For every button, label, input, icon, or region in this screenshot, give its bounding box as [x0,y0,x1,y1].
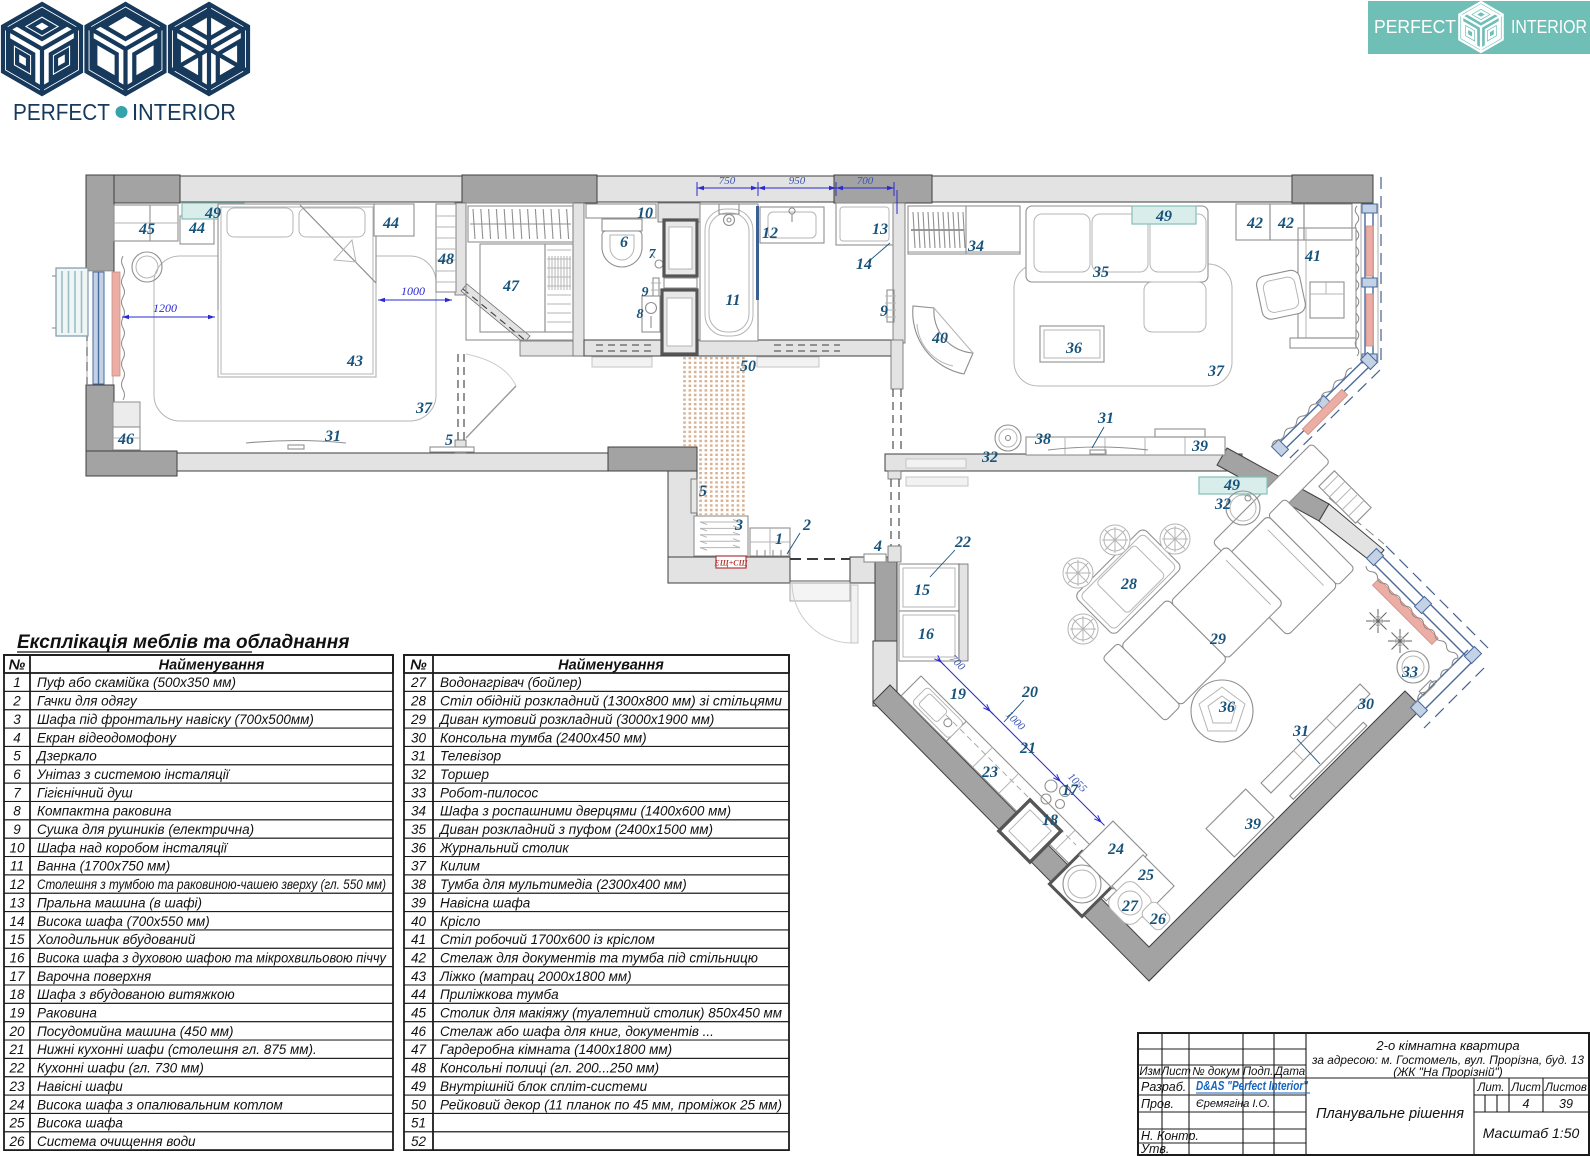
svg-text:33: 33 [411,785,427,800]
svg-text:Висока шафа: Висока шафа [37,1116,123,1131]
svg-text:36: 36 [411,840,427,855]
svg-text:Кухонні шафи (гл. 730 мм): Кухонні шафи (гл. 730 мм) [37,1061,204,1076]
svg-text:20: 20 [1021,684,1038,701]
svg-text:Стіл обідній розкладний (1300х: Стіл обідній розкладний (1300х800 мм) зі… [440,694,783,709]
svg-text:5: 5 [699,483,707,500]
svg-text:18: 18 [1042,812,1058,829]
svg-text:Шафа з вбудованою витяжкою: Шафа з вбудованою витяжкою [37,987,235,1002]
svg-text:2-о кімнатна квартира: 2-о кімнатна квартира [1375,1038,1519,1053]
svg-text:29: 29 [1209,631,1226,648]
svg-text:Журнальний столик: Журнальний столик [439,840,569,855]
svg-text:37: 37 [411,859,427,874]
svg-text:34: 34 [411,804,426,819]
svg-text:Дата: Дата [1273,1066,1305,1078]
svg-text:Внутрішній блок спліт-системи: Внутрішній блок спліт-системи [440,1079,648,1094]
svg-text:6: 6 [620,234,628,251]
svg-text:30: 30 [1357,696,1374,713]
svg-text:9: 9 [880,303,888,320]
svg-text:3: 3 [13,712,21,727]
svg-text:Ліжко (матрац 2000х1800 мм): Ліжко (матрац 2000х1800 мм) [439,969,632,984]
svg-text:19: 19 [950,686,966,703]
svg-text:Стелаж для документів та тумба: Стелаж для документів та тумба під стіль… [440,951,758,966]
svg-text:13: 13 [872,221,888,238]
svg-text:INTERIOR: INTERIOR [132,99,236,125]
svg-text:Водонагрівач (бойлер): Водонагрівач (бойлер) [440,675,582,690]
svg-text:Варочна поверхня: Варочна поверхня [37,969,151,984]
svg-text:19: 19 [9,1006,25,1021]
svg-text:50: 50 [411,1097,427,1112]
svg-text:Посудомийна машина (450 мм): Посудомийна машина (450 мм) [37,1024,234,1039]
svg-text:24: 24 [8,1097,24,1112]
svg-text:750: 750 [719,175,736,187]
svg-text:48: 48 [437,251,454,268]
svg-text:27: 27 [1121,898,1139,915]
svg-text:Масштаб 1:50: Масштаб 1:50 [1483,1125,1580,1141]
svg-text:25: 25 [1137,867,1154,884]
svg-text:№: № [9,658,26,674]
svg-text:51: 51 [411,1116,426,1131]
svg-text:49: 49 [411,1079,427,1094]
svg-text:22: 22 [8,1061,25,1076]
svg-text:49: 49 [1223,477,1240,494]
svg-text:Телевізор: Телевізор [440,749,502,764]
svg-text:Нижні кухонні шафи (столешня г: Нижні кухонні шафи (столешня гл. 875 мм)… [37,1042,317,1057]
svg-text:23: 23 [8,1079,25,1094]
svg-text:Шафа з роспашними дверцями (14: Шафа з роспашними дверцями (1400х600 мм) [440,804,731,819]
svg-text:33: 33 [1401,664,1418,681]
svg-text:28: 28 [1120,576,1137,593]
svg-text:(ЖК "На Прорізній"): (ЖК "На Прорізній") [1393,1065,1503,1079]
svg-text:Планувальне рішення: Планувальне рішення [1316,1106,1464,1122]
svg-text:2: 2 [12,694,21,709]
svg-text:49: 49 [1155,208,1172,225]
svg-text:Гігієнічний душ: Гігієнічний душ [37,785,133,800]
svg-text:№: № [410,658,427,674]
svg-text:47: 47 [411,1042,427,1057]
svg-text:Лист: Лист [1160,1066,1191,1078]
svg-text:32: 32 [981,449,998,466]
svg-text:50: 50 [740,358,756,375]
svg-text:Утв.: Утв. [1140,1142,1169,1156]
svg-text:PERFECT: PERFECT [13,99,110,125]
svg-text:42: 42 [1246,215,1263,232]
svg-text:45: 45 [411,1006,427,1021]
svg-text:1000: 1000 [401,284,425,298]
svg-text:38: 38 [411,877,427,892]
svg-text:Дзеркало: Дзеркало [35,749,97,764]
svg-text:17: 17 [9,969,25,984]
svg-text:44: 44 [411,987,426,1002]
svg-text:Пральна машина (в шафі): Пральна машина (в шафі) [37,895,202,910]
svg-text:16: 16 [9,950,25,965]
svg-text:Висока шафа (700х550 мм): Висока шафа (700х550 мм) [37,914,210,929]
svg-text:Разраб.: Разраб. [1141,1080,1186,1094]
svg-text:Найменування: Найменування [558,658,664,674]
svg-text:41: 41 [1304,248,1321,265]
svg-text:Робот-пилосос: Робот-пилосос [440,785,539,800]
svg-text:Раковина: Раковина [37,1006,97,1021]
svg-text:32: 32 [411,767,427,782]
svg-text:PERFECT: PERFECT [1374,17,1456,37]
svg-text:Стелаж або шафа для книг, доку: Стелаж або шафа для книг, документів ... [440,1024,714,1039]
svg-text:Навісні шафи: Навісні шафи [37,1079,123,1094]
svg-text:8: 8 [637,307,644,322]
svg-text:34: 34 [967,238,984,255]
svg-text:Система очищення води: Система очищення води [37,1134,196,1149]
svg-text:35: 35 [1092,264,1109,281]
svg-text:11: 11 [725,292,740,309]
svg-text:7: 7 [13,785,21,800]
svg-text:46: 46 [411,1024,427,1039]
svg-text:Гардеробна кімната (1400х1800: Гардеробна кімната (1400х1800 мм) [440,1042,672,1057]
svg-text:Н. Контр.: Н. Контр. [1141,1129,1199,1143]
svg-text:26: 26 [1149,911,1166,928]
svg-text:30: 30 [411,730,427,745]
svg-text:Консольні полиці (гл. 200...25: Консольні полиці (гл. 200...250 мм) [440,1061,659,1076]
svg-text:12: 12 [762,225,778,242]
svg-text:31: 31 [1097,410,1114,427]
svg-text:42: 42 [411,950,427,965]
svg-text:43: 43 [346,353,363,370]
svg-text:Килим: Килим [440,859,480,874]
svg-text:9: 9 [642,285,649,300]
svg-text:950: 950 [789,175,806,187]
svg-text:44: 44 [188,220,205,237]
svg-text:17: 17 [1062,782,1079,799]
svg-text:Консольна тумба (2400х450 мм): Консольна тумба (2400х450 мм) [440,730,647,745]
svg-text:16: 16 [918,626,934,643]
svg-text:28: 28 [410,694,427,709]
svg-text:Крісло: Крісло [440,914,481,929]
svg-text:Сушка для рушників (електрична: Сушка для рушників (електрична) [37,822,254,837]
svg-text:40: 40 [931,330,948,347]
svg-text:Гачки для одягу: Гачки для одягу [37,694,138,709]
svg-text:Холодильник вбудований: Холодильник вбудований [36,932,196,947]
svg-text:Навісна шафа: Навісна шафа [440,895,531,910]
svg-text:5: 5 [13,749,21,764]
svg-text:5: 5 [445,432,453,449]
svg-text:37: 37 [1207,363,1225,380]
svg-text:39: 39 [1191,438,1208,455]
svg-text:22: 22 [954,534,971,551]
svg-text:21: 21 [8,1042,24,1057]
svg-text:INTERIOR: INTERIOR [1511,17,1587,37]
svg-text:1: 1 [775,531,783,548]
svg-text:Диван розкладний з пуфом (2400: Диван розкладний з пуфом (2400х1500 мм) [438,822,713,837]
svg-text:39: 39 [1244,816,1261,833]
svg-text:10: 10 [9,840,25,855]
svg-text:Шафа над коробом інсталяції: Шафа над коробом інсталяції [37,840,229,855]
svg-text:31: 31 [324,428,341,445]
svg-text:Пуф або скамійка (500х350 мм): Пуф або скамійка (500х350 мм) [37,675,236,690]
svg-text:40: 40 [411,914,427,929]
svg-text:41: 41 [411,932,426,947]
svg-text:700: 700 [857,175,874,187]
svg-text:№ докум: № докум [1192,1066,1240,1078]
svg-text:1200: 1200 [153,301,177,315]
svg-text:10: 10 [637,205,653,222]
svg-text:Столик для макіяжу (туалетний: Столик для макіяжу (туалетний столик) 85… [440,1006,782,1021]
svg-text:D&AS "Perfect Interior": D&AS "Perfect Interior" [1196,1079,1309,1093]
svg-text:ЕЩ+СЩ: ЕЩ+СЩ [713,559,748,568]
svg-text:11: 11 [10,859,24,874]
svg-text:8: 8 [13,804,21,819]
svg-text:44: 44 [382,215,399,232]
svg-text:Висока шафа з духовою шафою та: Висока шафа з духовою шафою та мікрохвил… [37,951,387,966]
svg-text:Екран відеодомофону: Екран відеодомофону [37,730,177,745]
svg-text:36: 36 [1065,340,1082,357]
svg-text:Єремягіна І.О.: Єремягіна І.О. [1196,1098,1270,1110]
svg-text:52: 52 [411,1134,427,1149]
svg-text:38: 38 [1034,431,1051,448]
svg-text:4: 4 [1523,1097,1530,1111]
svg-text:15: 15 [9,932,25,947]
svg-text:35: 35 [411,822,427,837]
svg-text:46: 46 [117,431,134,448]
svg-text:Унітаз з системою інсталяції: Унітаз з системою інсталяції [36,767,231,782]
svg-text:14: 14 [9,914,24,929]
svg-text:Стіл робочий 1700х600 із крісл: Стіл робочий 1700х600 із кріслом [440,932,655,947]
svg-text:7: 7 [649,247,657,262]
svg-text:20: 20 [8,1024,25,1039]
svg-text:12: 12 [9,877,25,892]
svg-text:25: 25 [8,1116,25,1131]
svg-text:Найменування: Найменування [159,658,265,674]
svg-text:42: 42 [1277,215,1294,232]
svg-text:Торшер: Торшер [440,767,490,782]
svg-text:4: 4 [873,538,882,555]
svg-text:Подп.: Подп. [1243,1066,1274,1078]
svg-text:29: 29 [410,712,427,727]
svg-text:Компактна раковина: Компактна раковина [37,804,172,819]
svg-text:Рейковий декор (11 планок по 4: Рейковий декор (11 планок по 45 мм, пром… [440,1097,782,1112]
svg-text:Лит.: Лит. [1477,1082,1505,1094]
svg-text:Лист: Лист [1510,1082,1541,1094]
svg-text:36: 36 [1218,699,1235,716]
svg-text:49: 49 [204,205,221,222]
svg-text:26: 26 [8,1134,25,1149]
svg-text:24: 24 [1107,841,1124,858]
svg-text:48: 48 [411,1061,427,1076]
svg-text:4: 4 [13,730,21,745]
svg-text:1: 1 [13,675,21,690]
svg-text:31: 31 [411,749,426,764]
svg-text:47: 47 [502,278,520,295]
svg-text:Приліжкова тумба: Приліжкова тумба [440,987,559,1002]
svg-text:Висока шафа з опалювальним кот: Висока шафа з опалювальним котлом [37,1097,283,1112]
svg-text:2: 2 [802,517,811,534]
svg-text:23: 23 [981,764,998,781]
svg-text:18: 18 [9,987,25,1002]
svg-text:Ванна (1700х750 мм): Ванна (1700х750 мм) [37,859,170,874]
svg-text:3: 3 [734,517,743,534]
svg-text:32: 32 [1214,496,1231,513]
svg-text:Експлікація меблів та обладнан: Експлікація меблів та обладнання [17,632,349,653]
svg-text:39: 39 [1559,1097,1573,1111]
svg-text:27: 27 [410,675,427,690]
svg-text:6: 6 [13,767,21,782]
svg-text:13: 13 [9,895,25,910]
svg-text:Пров.: Пров. [1141,1097,1174,1111]
svg-text:Листов: Листов [1544,1082,1587,1094]
svg-text:37: 37 [415,400,433,417]
svg-text:Изм: Изм [1139,1066,1160,1078]
svg-text:Диван кутовий розкладний (3000: Диван кутовий розкладний (3000х1900 мм) [438,712,714,727]
svg-text:14: 14 [856,256,872,273]
svg-text:Шафа під фронтальну навіску (7: Шафа під фронтальну навіску (700х500мм) [37,712,314,727]
svg-text:21: 21 [1019,740,1036,757]
svg-text:39: 39 [411,895,427,910]
svg-text:Столешня з тумбою та раковиною: Столешня з тумбою та раковиною-чашею зве… [37,877,386,892]
svg-text:43: 43 [411,969,427,984]
svg-text:15: 15 [914,582,930,599]
svg-text:31: 31 [1292,723,1309,740]
svg-text:Тумба для мультимедіа (2300х40: Тумба для мультимедіа (2300х400 мм) [440,877,687,892]
svg-text:9: 9 [13,822,21,837]
svg-text:45: 45 [138,221,155,238]
